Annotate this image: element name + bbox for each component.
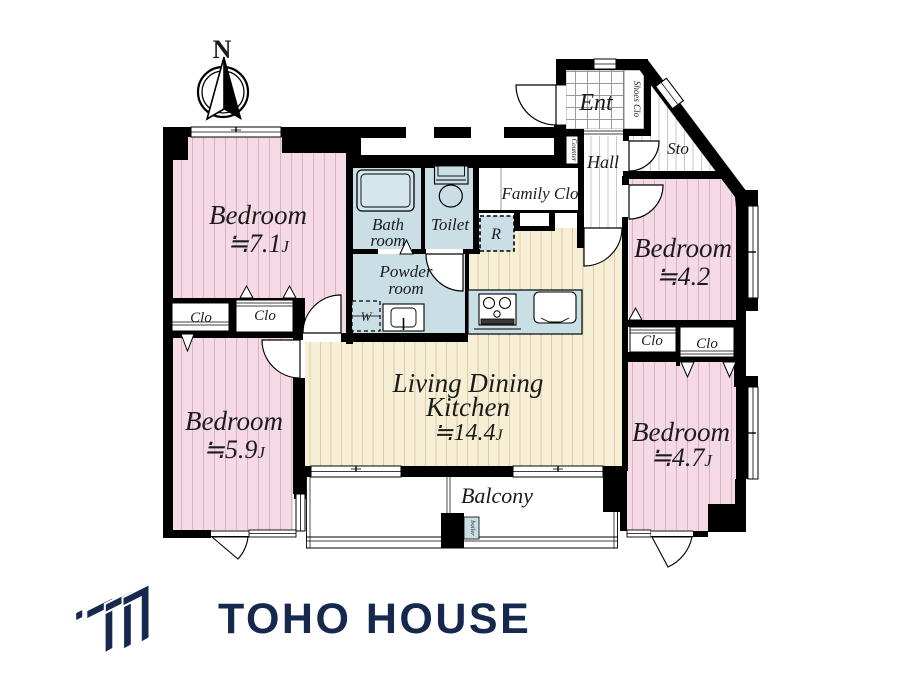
svg-text:≒14.4J: ≒14.4J bbox=[433, 420, 503, 446]
svg-text:Clo: Clo bbox=[696, 336, 718, 352]
svg-text:Ent: Ent bbox=[578, 90, 614, 116]
svg-text:Bedroom: Bedroom bbox=[185, 406, 283, 436]
svg-text:Clo: Clo bbox=[641, 333, 663, 349]
svg-text:Balcony: Balcony bbox=[461, 483, 533, 508]
svg-text:N: N bbox=[213, 35, 232, 64]
svg-text:Kitchen: Kitchen bbox=[425, 392, 510, 422]
svg-text:Clo: Clo bbox=[190, 310, 212, 326]
svg-text:boiler: boiler bbox=[469, 520, 476, 536]
svg-text:TOHO HOUSE: TOHO HOUSE bbox=[218, 595, 531, 643]
svg-text:Toilet: Toilet bbox=[431, 215, 470, 234]
svg-text:Shoes Clo: Shoes Clo bbox=[632, 81, 642, 118]
svg-text:R: R bbox=[490, 226, 501, 243]
svg-text:≒4.2: ≒4.2 bbox=[656, 262, 710, 291]
svg-text:Family Clo: Family Clo bbox=[501, 184, 579, 203]
svg-text:Bedroom: Bedroom bbox=[209, 200, 307, 230]
svg-text:Bedroom: Bedroom bbox=[634, 233, 732, 263]
svg-text:Clo: Clo bbox=[254, 308, 276, 324]
svg-text:≒7.1J: ≒7.1J bbox=[227, 229, 290, 258]
svg-text:≒5.9J: ≒5.9J bbox=[203, 435, 266, 464]
svg-text:Counter: Counter bbox=[570, 139, 578, 162]
svg-text:room: room bbox=[370, 231, 405, 250]
svg-text:room: room bbox=[388, 279, 423, 298]
svg-text:≒4.7J: ≒4.7J bbox=[650, 443, 713, 472]
svg-text:Sto: Sto bbox=[667, 139, 689, 158]
svg-text:Hall: Hall bbox=[586, 152, 619, 172]
svg-text:W: W bbox=[361, 309, 373, 324]
